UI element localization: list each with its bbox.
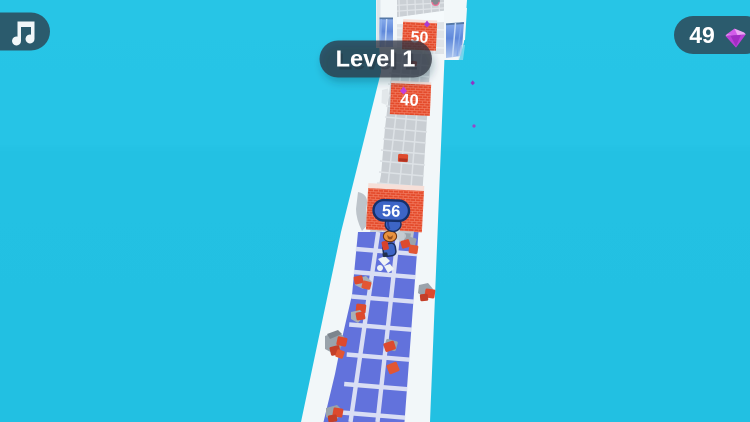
- svg-text:56: 56: [382, 202, 401, 221]
- svg-text:Level 1: Level 1: [336, 46, 416, 72]
- svg-text:49: 49: [689, 22, 715, 48]
- svg-text:40: 40: [400, 91, 419, 110]
